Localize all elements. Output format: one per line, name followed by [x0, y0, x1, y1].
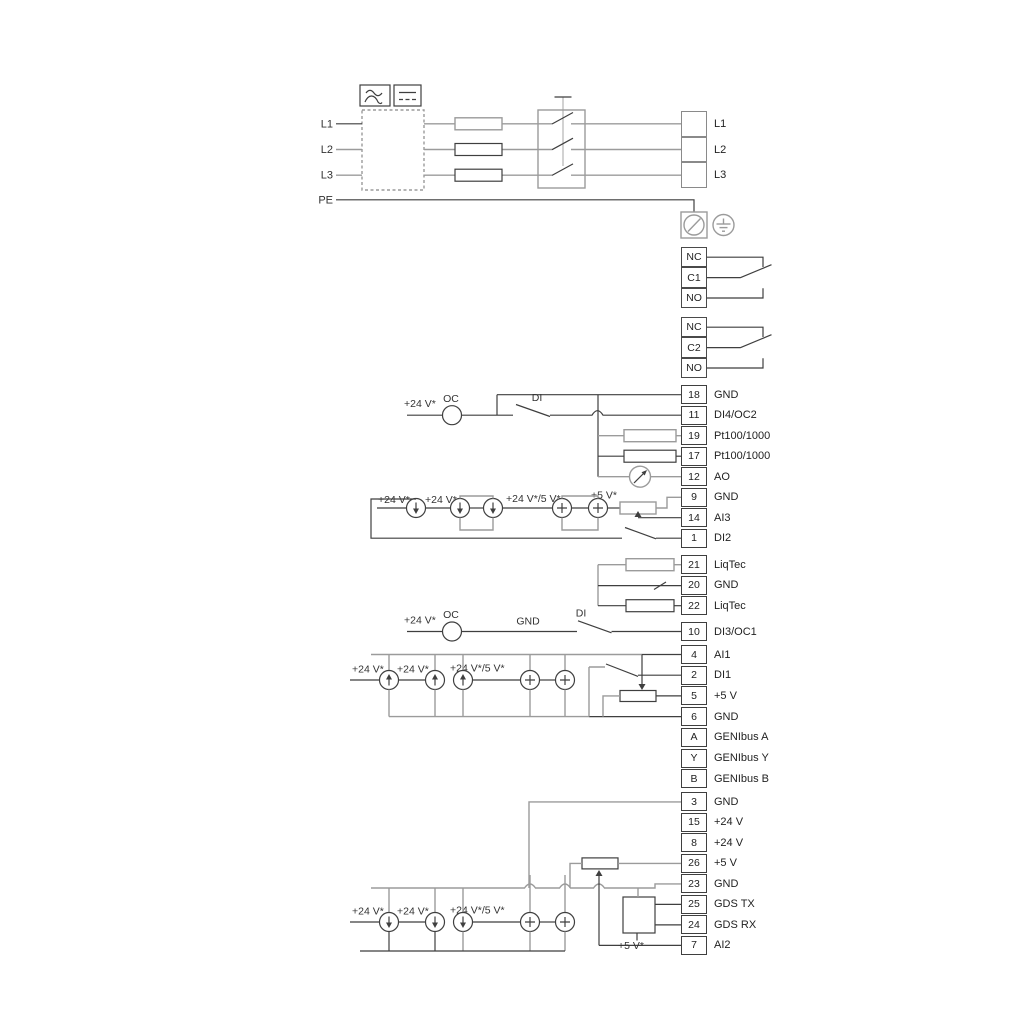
wiring-layer: L1 L2 L3 PE +24 V	[0, 0, 1024, 1024]
terminal-number: 8	[691, 837, 697, 849]
pe-screw-terminal-icon	[681, 212, 707, 238]
terminal-box	[681, 137, 707, 163]
pt100-resistor-2	[624, 450, 676, 462]
terminal-label: L3	[714, 169, 726, 181]
terminal-box: 2	[681, 666, 707, 685]
terminal-row: 14AI3	[681, 508, 707, 527]
current-source-up-icon	[426, 671, 445, 690]
terminal-row: 11DI4/OC2	[681, 406, 707, 425]
terminal-label: GENIbus B	[714, 773, 769, 785]
terminal-row: 10DI3/OC1	[681, 622, 707, 641]
terminal-label: GND	[714, 796, 738, 808]
terminal-number: 19	[688, 430, 700, 442]
terminal-row: 25GDS TX	[681, 895, 707, 914]
terminal-row: 26+5 V	[681, 854, 707, 873]
terminal-box: C2	[681, 337, 707, 357]
l2-label: L2	[321, 144, 333, 156]
main-switch	[538, 97, 585, 188]
di3-switch-blade	[578, 621, 612, 633]
pe-section: PE	[318, 195, 734, 239]
terminal-number: A	[690, 731, 697, 743]
liqtec-section	[598, 559, 681, 612]
terminal-number: NO	[686, 292, 702, 304]
terminal-label: GENIbus Y	[714, 752, 769, 764]
relay2-switch-blade	[740, 335, 772, 348]
terminal-number: 26	[688, 857, 700, 869]
ai1-supply1-label: +24 V*	[352, 664, 384, 676]
terminal-label: L1	[714, 118, 726, 130]
terminal-row: 6GND	[681, 707, 707, 726]
voltage-source-icon	[589, 499, 608, 518]
terminal-box: 3	[681, 792, 707, 811]
current-source-down-icon	[484, 499, 503, 518]
terminal-label: +24 V	[714, 837, 743, 849]
oc-label: OC	[443, 393, 459, 405]
fuse-l3	[455, 169, 502, 181]
terminal-label: GND	[714, 711, 738, 723]
converter-box	[362, 110, 424, 190]
relay1-switch-blade	[740, 265, 772, 278]
current-source-down-icon	[426, 913, 445, 932]
oc-label: OC	[443, 609, 459, 621]
terminal-row: 22LiqTec	[681, 596, 707, 615]
relay-cell: NC	[681, 247, 707, 267]
setpoint-potentiometer	[582, 858, 618, 869]
ai1-di1-section: +24 V* +24 V* +24 V*/5 V*	[350, 655, 681, 717]
current-source-up-icon	[454, 671, 473, 690]
terminal-box: 14	[681, 508, 707, 527]
terminal-number: NC	[686, 321, 701, 333]
terminal-row: 3GND	[681, 792, 707, 811]
fuse-l1	[455, 118, 502, 130]
terminal-number: B	[690, 773, 697, 785]
l1-label: L1	[321, 119, 333, 131]
open-collector-icon	[443, 406, 462, 425]
l3-label: L3	[321, 170, 333, 182]
voltage-source-icon	[553, 499, 572, 518]
terminal-label: GDS TX	[714, 898, 755, 910]
relay2-wiring	[707, 327, 772, 368]
terminal-row: 7AI2	[681, 936, 707, 955]
terminal-label: GND	[714, 389, 738, 401]
terminal-box: 24	[681, 915, 707, 934]
earth-ground-icon	[713, 215, 734, 236]
terminal-number: 15	[688, 816, 700, 828]
pt100-resistor-1	[624, 430, 676, 442]
liqtec-resistor-1	[626, 559, 674, 571]
terminal-box: 20	[681, 576, 707, 595]
terminal-box: 4	[681, 645, 707, 664]
gnd-wire-label: GND	[516, 616, 540, 628]
terminal-label: GND	[714, 878, 738, 890]
terminal-label: +24 V	[714, 816, 743, 828]
gds-sensor-box	[623, 897, 655, 933]
terminal-label: GND	[714, 579, 738, 591]
di1-switch-blade	[606, 664, 638, 676]
ai3-di2-section: +24 V* +24 V* +24 V*/5 V* +5 V*	[371, 490, 681, 539]
ai2-sensor-supply-label: +5 V*	[618, 940, 644, 952]
terminal-number: 18	[688, 389, 700, 401]
terminal-number: 9	[691, 491, 697, 503]
terminal-number: Y	[690, 752, 697, 764]
terminal-row: 12AO	[681, 467, 707, 486]
terminal-box: NO	[681, 288, 707, 308]
terminal-box: 19	[681, 426, 707, 445]
terminal-label: AO	[714, 471, 730, 483]
terminal-label: +5 V	[714, 857, 737, 869]
terminal-number: 22	[688, 600, 700, 612]
terminal-number: 2	[691, 669, 697, 681]
terminal-label: +5 V	[714, 690, 737, 702]
terminal-label: LiqTec	[714, 600, 746, 612]
terminal-row: YGENIbus Y	[681, 749, 707, 768]
wiring-diagram: L1 L2 L3 PE +24 V	[0, 0, 1024, 1024]
terminal-label: DI1	[714, 669, 731, 681]
terminal-box	[681, 162, 707, 188]
terminal-box: 12	[681, 467, 707, 486]
terminal-box: NC	[681, 317, 707, 337]
voltage-source-icon	[521, 913, 540, 932]
terminal-box: 23	[681, 874, 707, 893]
analog-output-gauge-icon	[630, 466, 651, 487]
terminal-box: 8	[681, 833, 707, 852]
di4-pt100-ao-section: +24 V* OC DI	[404, 392, 681, 487]
terminal-label: GENIbus A	[714, 731, 768, 743]
terminal-label: DI2	[714, 532, 731, 544]
voltage-source-icon	[521, 671, 540, 690]
dc-symbol	[394, 85, 421, 106]
terminal-number: 21	[688, 559, 700, 571]
terminal-number: C1	[687, 272, 700, 284]
terminal-box: 15	[681, 813, 707, 832]
current-source-down-icon	[380, 913, 399, 932]
terminal-box: 6	[681, 707, 707, 726]
relay-cell: NC	[681, 317, 707, 337]
terminal-box: 25	[681, 895, 707, 914]
terminal-number: 20	[688, 579, 700, 591]
terminal-row: 2DI1	[681, 666, 707, 685]
terminal-label: GDS RX	[714, 919, 756, 931]
open-collector-icon	[443, 622, 462, 641]
terminal-row: 17Pt100/1000	[681, 447, 707, 466]
voltage-source-icon	[556, 671, 575, 690]
terminal-box: C1	[681, 267, 707, 287]
terminal-box: Y	[681, 749, 707, 768]
terminal-row: L2	[681, 137, 707, 163]
terminal-number: 6	[691, 711, 697, 723]
voltage-source-icon	[556, 913, 575, 932]
terminal-label: Pt100/1000	[714, 450, 770, 462]
terminal-row: 1DI2	[681, 529, 707, 548]
terminal-number: 12	[688, 471, 700, 483]
terminal-number: NC	[686, 251, 701, 263]
terminal-row: AGENIbus A	[681, 728, 707, 747]
liqtec-resistor-2	[626, 600, 674, 612]
terminal-label: DI4/OC2	[714, 409, 757, 421]
terminal-box: NO	[681, 358, 707, 378]
pe-label: PE	[318, 195, 333, 207]
switch-blade	[552, 164, 573, 176]
terminal-label: AI2	[714, 939, 731, 951]
terminal-row: BGENIbus B	[681, 769, 707, 788]
relay-cell: NO	[681, 358, 707, 378]
terminal-box: 5	[681, 686, 707, 705]
terminal-row: 19Pt100/1000	[681, 426, 707, 445]
wiper-arrow-down	[639, 684, 646, 690]
di4-supply-label: +24 V*	[404, 398, 436, 410]
terminal-row: 20GND	[681, 576, 707, 595]
terminal-box: 21	[681, 555, 707, 574]
terminal-row: 24GDS RX	[681, 915, 707, 934]
terminal-box: 17	[681, 447, 707, 466]
terminal-row: 18GND	[681, 385, 707, 404]
terminal-box: 10	[681, 622, 707, 641]
terminal-box: 26	[681, 854, 707, 873]
wiper-arrow-up	[596, 870, 603, 876]
ai2-supply2-label: +24 V*	[397, 906, 429, 918]
terminal-box: 1	[681, 529, 707, 548]
ai1-potentiometer	[620, 691, 656, 702]
terminal-number: 5	[691, 690, 697, 702]
terminal-box: A	[681, 728, 707, 747]
terminal-row: 4AI1	[681, 645, 707, 664]
terminal-row: 23GND	[681, 874, 707, 893]
terminal-box: B	[681, 769, 707, 788]
terminal-number: 17	[688, 450, 700, 462]
terminal-box	[681, 111, 707, 137]
ac-symbol	[360, 85, 390, 106]
terminal-row: L1	[681, 111, 707, 137]
terminal-row: 15+24 V	[681, 813, 707, 832]
switch-blade	[552, 113, 573, 125]
terminal-number: 25	[688, 898, 700, 910]
di4-switch-blade	[516, 405, 550, 417]
terminal-box: 7	[681, 936, 707, 955]
terminal-number: 24	[688, 919, 700, 931]
terminal-box: 9	[681, 488, 707, 507]
ai1-supply2-label: +24 V*	[397, 664, 429, 676]
terminal-label: AI3	[714, 512, 731, 524]
relay-cell: C1	[681, 267, 707, 287]
terminal-number: 1	[691, 532, 697, 544]
terminal-number: 10	[688, 626, 700, 638]
di3-supply-label: +24 V*	[404, 615, 436, 627]
di3-section: +24 V* OC GND DI	[404, 608, 681, 642]
current-source-up-icon	[380, 671, 399, 690]
current-source-down-icon	[451, 499, 470, 518]
terminal-row: L3	[681, 162, 707, 188]
terminal-row: 9GND	[681, 488, 707, 507]
terminal-box: 11	[681, 406, 707, 425]
terminal-number: 3	[691, 796, 697, 808]
terminal-label: LiqTec	[714, 559, 746, 571]
current-source-down-icon	[407, 499, 426, 518]
di-label: DI	[532, 392, 543, 404]
relay-cell: NO	[681, 288, 707, 308]
switch-blade	[552, 138, 573, 150]
terminal-box: 18	[681, 385, 707, 404]
terminal-number: 23	[688, 878, 700, 890]
terminal-label: GND	[714, 491, 738, 503]
bottom-section: +5 V* +24 V* +24 V* +24 V*/5 V*	[350, 802, 681, 952]
terminal-row: 21LiqTec	[681, 555, 707, 574]
di-label: DI	[576, 608, 587, 620]
power-input-section: L1 L2 L3	[321, 85, 681, 190]
terminal-number: NO	[686, 362, 702, 374]
terminal-box: 22	[681, 596, 707, 615]
di2-switch-blade	[625, 528, 656, 539]
ai3-supply3-label: +24 V*/5 V*	[506, 493, 561, 505]
terminal-row: 5+5 V	[681, 686, 707, 705]
terminal-number: C2	[687, 342, 700, 354]
terminal-row: 8+24 V	[681, 833, 707, 852]
terminal-number: 4	[691, 649, 697, 661]
relay1-wiring	[707, 257, 772, 298]
relay-cell: C2	[681, 337, 707, 357]
terminal-label: DI3/OC1	[714, 626, 757, 638]
terminal-box: NC	[681, 247, 707, 267]
terminal-label: Pt100/1000	[714, 430, 770, 442]
ai3-supply1-label: +24 V*	[378, 494, 410, 506]
fuse-l2	[455, 144, 502, 156]
terminal-label: AI1	[714, 649, 731, 661]
current-source-down-icon	[454, 913, 473, 932]
terminal-label: L2	[714, 144, 726, 156]
ai2-supply1-label: +24 V*	[352, 906, 384, 918]
terminal-number: 14	[688, 512, 700, 524]
terminal-number: 7	[691, 939, 697, 951]
terminal-number: 11	[689, 409, 700, 421]
